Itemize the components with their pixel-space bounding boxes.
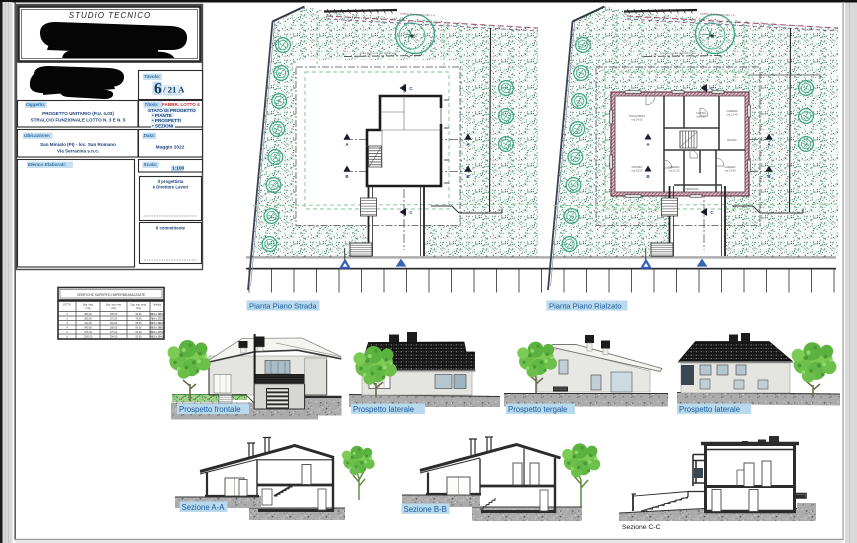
svg-text:CAMERA: CAMERA (724, 165, 735, 169)
svg-text:840.00: 840.00 (84, 327, 92, 330)
svg-text:95.00: 95.00 (136, 336, 143, 339)
svg-text:VERIFICHE SUPERFICI IMPERMEABI: VERIFICHE SUPERFICI IMPERMEABILIZZATE (77, 293, 145, 297)
svg-text:(mq): (mq) (136, 307, 141, 310)
svg-text:Prospetto tergale: Prospetto tergale (508, 405, 567, 414)
svg-text:Prospetto frontale: Prospetto frontale (179, 405, 241, 414)
svg-text:Elenco Elaborati:: Elenco Elaborati: (28, 162, 67, 167)
svg-text:SOGGIORNO: SOGGIORNO (629, 114, 645, 118)
svg-text:90.00: 90.00 (136, 313, 143, 316)
svg-text:Pianta Piano Strada: Pianta Piano Strada (249, 302, 317, 311)
svg-text:San Miniato (PI) - loc. San Ro: San Miniato (PI) - loc. San Romano (40, 142, 116, 147)
svg-text:mq 13.60: mq 13.60 (725, 169, 736, 173)
svg-text:e Direttore Lavori: e Direttore Lavori (153, 185, 189, 190)
svg-text:82.0 ≤ 175.0: 82.0 ≤ 175.0 (150, 331, 164, 334)
svg-text:/ 21 A: / 21 A (162, 85, 185, 95)
svg-text:CAMERA: CAMERA (668, 165, 679, 169)
svg-text:Titolo:: Titolo: (145, 102, 160, 107)
svg-text:Scala:: Scala: (144, 162, 158, 167)
svg-text:80.0 ≤ 168.0: 80.0 ≤ 168.0 (150, 327, 164, 330)
svg-text:(mq): (mq) (86, 307, 91, 310)
svg-text:linea di gronda del fabbricato: linea di gronda del fabbricato (360, 51, 396, 55)
svg-text:204.00: 204.00 (110, 336, 118, 339)
svg-text:Prospetto laterale: Prospetto laterale (679, 405, 740, 414)
svg-text:Maggio 2022: Maggio 2022 (156, 145, 185, 151)
svg-text:Sezione B-B: Sezione B-B (404, 505, 447, 514)
svg-text:• PIANTE: • PIANTE (152, 113, 172, 118)
svg-text:860.00: 860.00 (84, 318, 92, 321)
svg-text:Pianta Piano Rialzato: Pianta Piano Rialzato (549, 302, 622, 311)
svg-text:Tavola:: Tavola: (144, 74, 161, 79)
svg-text:mq 11.20: mq 11.20 (669, 169, 680, 173)
svg-text:182.00: 182.00 (110, 322, 118, 325)
svg-text:85.0 ≤ 182.0: 85.0 ≤ 182.0 (150, 322, 164, 325)
svg-text:78.0 ≤ 172.0: 78.0 ≤ 172.0 (150, 318, 164, 321)
svg-text:mq 12.40: mq 12.40 (727, 113, 738, 117)
svg-text:80.00: 80.00 (136, 327, 143, 330)
svg-text:PRANZO: PRANZO (632, 165, 643, 169)
svg-text:Data:: Data: (144, 133, 156, 138)
svg-text:LOTTO: LOTTO (63, 304, 71, 307)
svg-text:CUCINA: CUCINA (696, 111, 706, 115)
svg-text:1020.00: 1020.00 (84, 336, 93, 339)
svg-text:BAGNO: BAGNO (727, 138, 736, 142)
svg-text:linea di gronda del fabbricato: linea di gronda del fabbricato (660, 51, 696, 55)
svg-text:mq 18.20: mq 18.20 (632, 169, 643, 173)
svg-text:172.00: 172.00 (110, 318, 118, 321)
svg-text:(mq): (mq) (111, 307, 116, 310)
svg-text:910.00: 910.00 (84, 322, 92, 325)
svg-text:90.0 ≤ 195.0: 90.0 ≤ 195.0 (150, 313, 164, 316)
svg-text:78.00: 78.00 (136, 318, 143, 321)
svg-text:875.00: 875.00 (84, 331, 92, 334)
svg-text:Sezione C-C: Sezione C-C (622, 524, 661, 531)
svg-text:mq 24.50: mq 24.50 (632, 118, 643, 122)
svg-text:Via Serracina s.n.c.: Via Serracina s.n.c. (57, 149, 99, 154)
svg-text:980.00: 980.00 (84, 313, 92, 316)
svg-text:Sezione A-A: Sezione A-A (182, 503, 226, 512)
svg-text:PROGETTO UNITARIO (P.U. 4.03): PROGETTO UNITARIO (P.U. 4.03) (42, 111, 114, 116)
svg-text:TERRAZZA: TERRAZZA (685, 187, 699, 191)
svg-text:CAMERA: CAMERA (726, 109, 737, 113)
svg-text:STUDIO TECNICO: STUDIO TECNICO (69, 11, 151, 20)
svg-text:mq 9.80: mq 9.80 (696, 115, 706, 119)
svg-text:168.00: 168.00 (110, 327, 118, 330)
svg-text:195.00: 195.00 (110, 313, 118, 316)
svg-text:Il committente: Il committente (156, 226, 186, 231)
svg-text:82.00: 82.00 (136, 331, 143, 334)
svg-text:85.00: 85.00 (136, 322, 143, 325)
svg-text:175.00: 175.00 (110, 331, 118, 334)
svg-text:6: 6 (154, 81, 162, 98)
svg-text:Il progettista: Il progettista (158, 179, 184, 184)
svg-text:95.0 ≤ 204.0: 95.0 ≤ 204.0 (150, 336, 164, 339)
svg-text:Prospetto laterale: Prospetto laterale (353, 405, 414, 414)
svg-text:Ubicazione:: Ubicazione: (24, 133, 51, 138)
svg-text:FABBR. LOTTO 4: FABBR. LOTTO 4 (162, 102, 200, 107)
svg-text:Verifica: Verifica (153, 304, 162, 307)
svg-text:1:100: 1:100 (172, 166, 185, 172)
svg-text:STRALCIO FUNZIONALE LOTTO N. 3: STRALCIO FUNZIONALE LOTTO N. 3 E N. 5 (31, 118, 126, 123)
svg-text:• SEZIONI: • SEZIONI (152, 123, 173, 128)
svg-text:Oggetto:: Oggetto: (26, 102, 46, 107)
